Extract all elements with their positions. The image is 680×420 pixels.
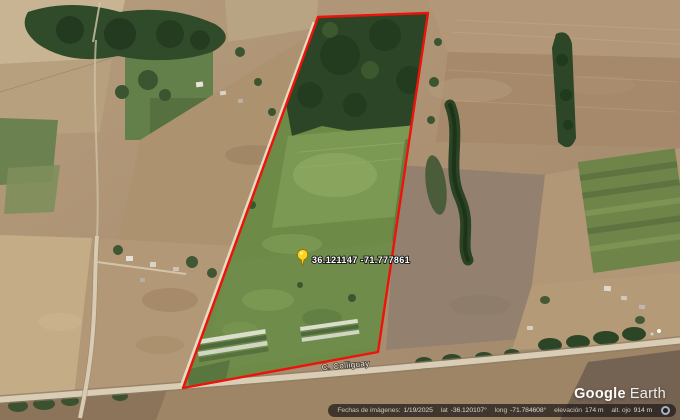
lat-label: lat bbox=[441, 407, 448, 414]
long-label: long bbox=[495, 407, 507, 414]
watermark-earth: Earth bbox=[630, 386, 666, 402]
placemark-coordinates-label[interactable]: 36.121147 -71.777861 bbox=[312, 255, 410, 265]
imagery-date-value: 1/19/2025 bbox=[403, 407, 432, 414]
watermark-google: Google bbox=[574, 386, 626, 402]
elevation-value: 174 m bbox=[585, 407, 603, 414]
status-bar: Fechas de imágenes: 1/19/2025 lat -36.12… bbox=[328, 404, 676, 417]
long-value: -71.784608° bbox=[510, 407, 546, 414]
lat-value: -36.120107° bbox=[451, 407, 487, 414]
eye-altitude-label: alt. ojo bbox=[611, 407, 630, 414]
streaming-indicator-icon bbox=[661, 406, 670, 415]
elevation-label: elevación bbox=[554, 407, 582, 414]
google-earth-viewport[interactable]: C. Colliguay 36.121147 -71.777861 Google… bbox=[0, 0, 680, 420]
satellite-map[interactable]: C. Colliguay 36.121147 -71.777861 bbox=[0, 0, 680, 420]
eye-altitude-value: 914 m bbox=[634, 407, 652, 414]
google-earth-watermark: Google Earth bbox=[574, 386, 666, 402]
imagery-date-label: Fechas de imágenes: bbox=[337, 407, 400, 414]
